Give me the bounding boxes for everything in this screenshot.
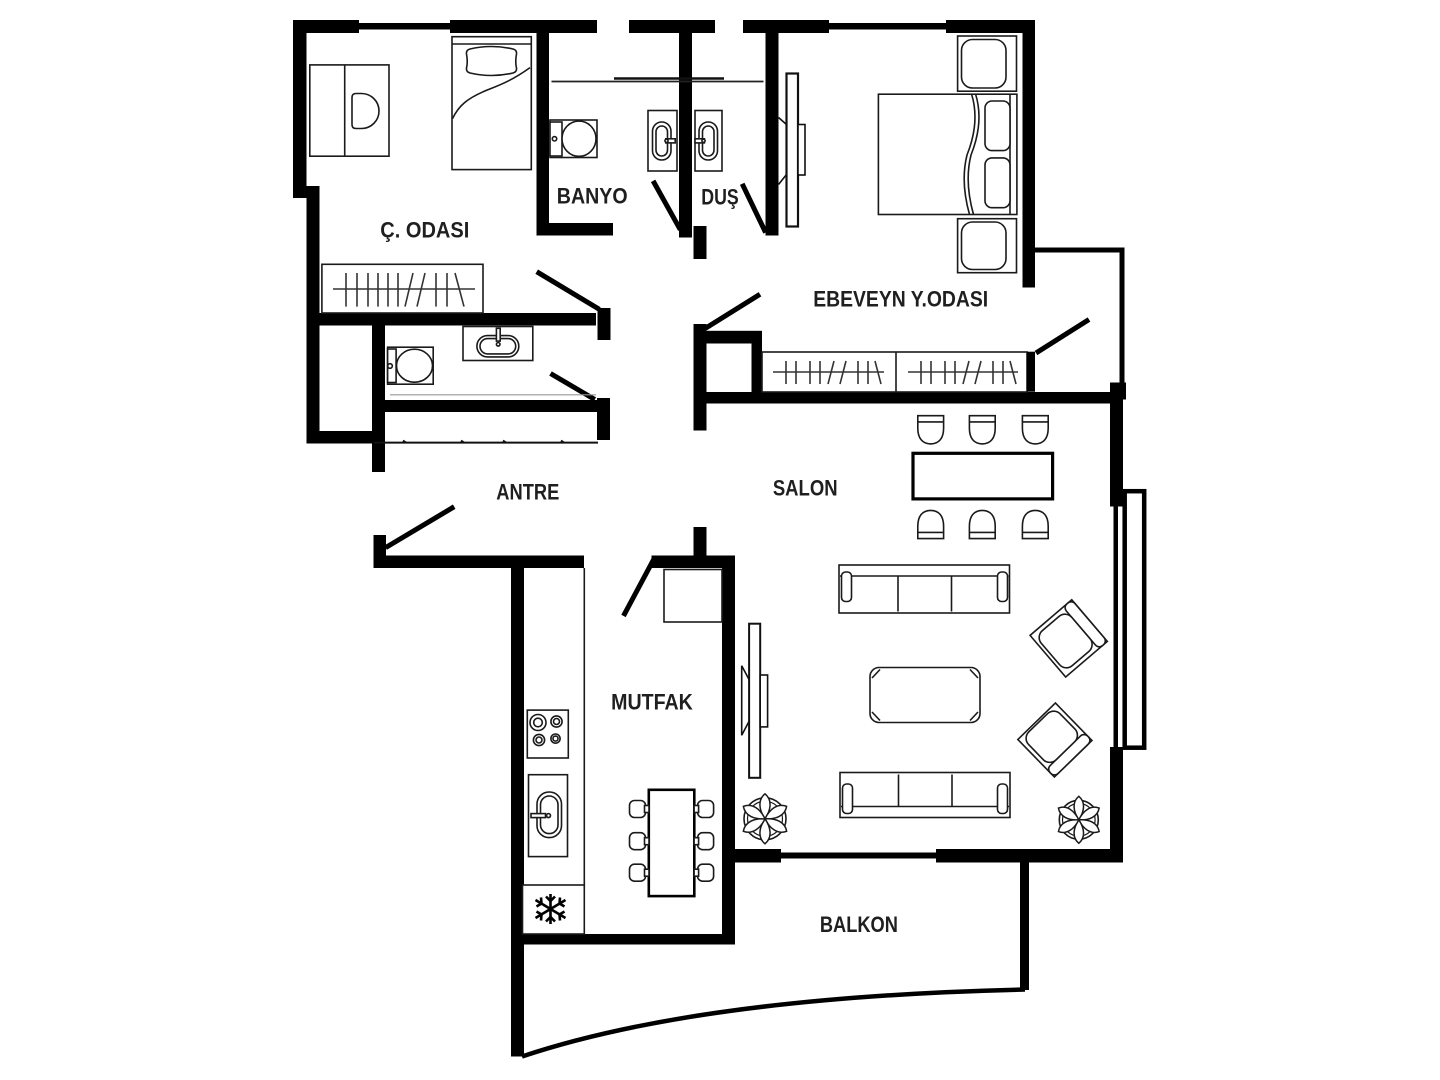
- svg-text:MUTFAK: MUTFAK: [611, 690, 693, 715]
- svg-text:DUŞ: DUŞ: [701, 184, 739, 209]
- svg-text:BALKON: BALKON: [820, 912, 898, 937]
- svg-text:SALON: SALON: [773, 476, 838, 501]
- svg-text:Ç. ODASI: Ç. ODASI: [380, 218, 469, 243]
- svg-text:ANTRE: ANTRE: [496, 480, 559, 505]
- svg-text:EBEVEYN Y.ODASI: EBEVEYN Y.ODASI: [813, 287, 988, 312]
- svg-text:BANYO: BANYO: [557, 184, 628, 209]
